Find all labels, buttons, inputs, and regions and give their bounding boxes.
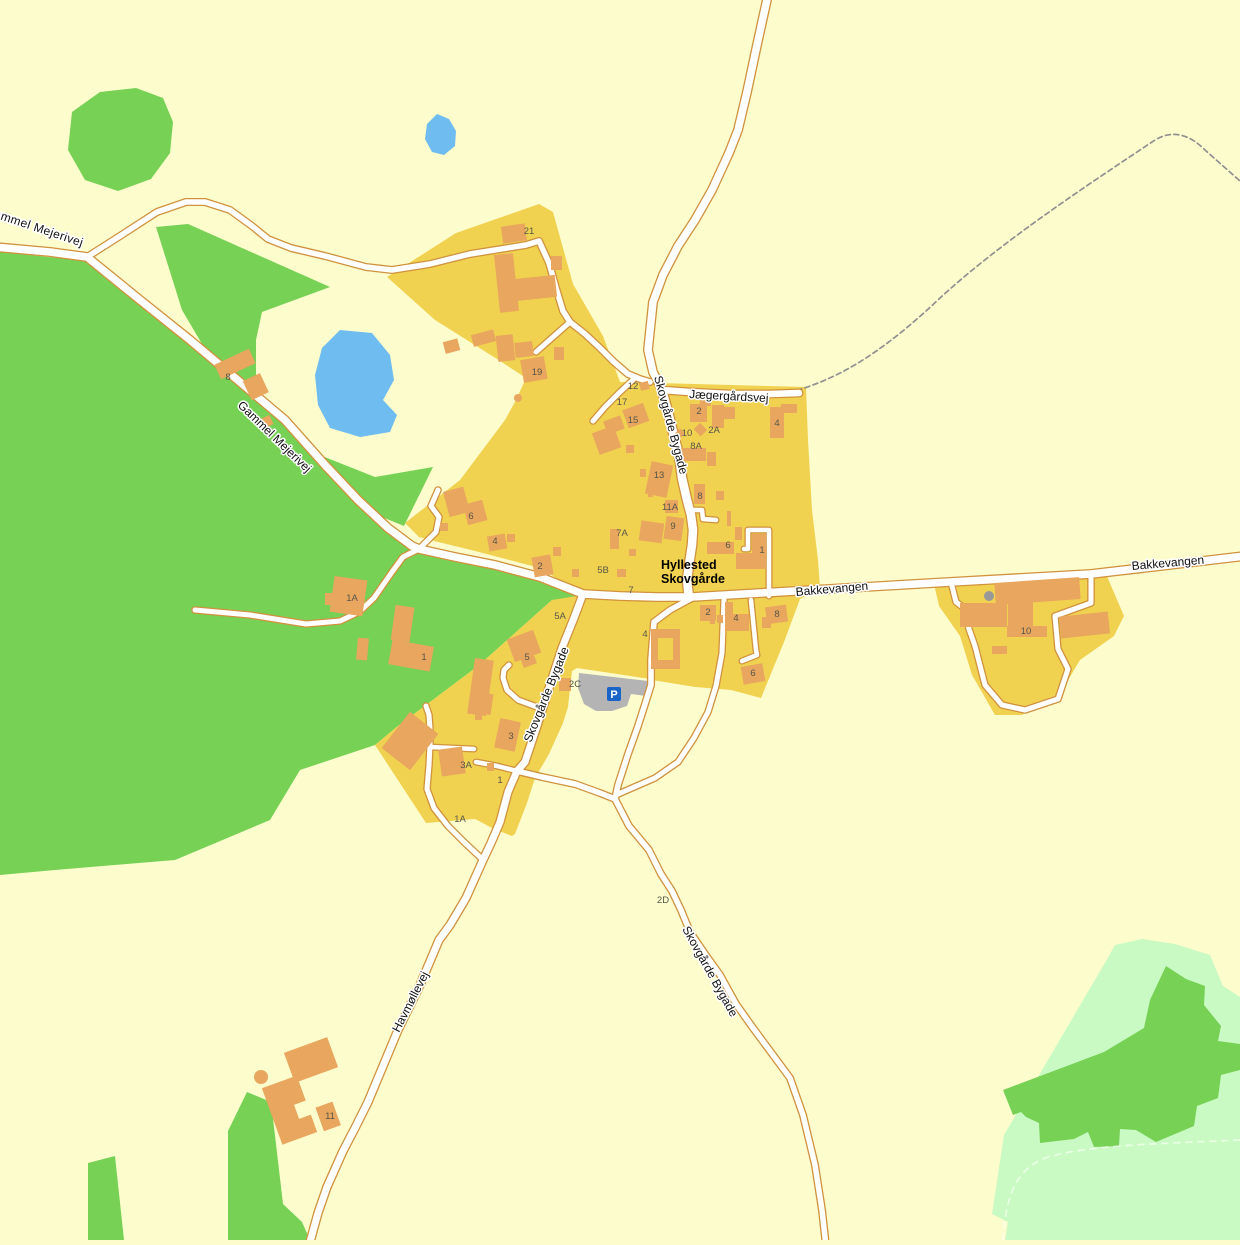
svg-text:7A: 7A — [616, 528, 628, 539]
svg-text:8A: 8A — [690, 441, 702, 452]
svg-text:Skovgårde: Skovgårde — [661, 572, 725, 586]
svg-text:P: P — [610, 689, 617, 701]
svg-text:8: 8 — [774, 609, 779, 620]
svg-text:4: 4 — [733, 613, 738, 624]
svg-text:3: 3 — [508, 731, 513, 742]
svg-text:2C: 2C — [569, 679, 581, 690]
svg-text:19: 19 — [532, 367, 543, 378]
svg-text:4: 4 — [642, 629, 647, 640]
svg-text:1A: 1A — [454, 814, 466, 825]
svg-text:2: 2 — [705, 607, 710, 618]
svg-text:Hyllested: Hyllested — [661, 558, 717, 572]
svg-text:6: 6 — [750, 668, 755, 679]
svg-text:2A: 2A — [708, 425, 720, 436]
svg-text:11: 11 — [325, 1111, 335, 1122]
svg-text:2: 2 — [537, 561, 542, 572]
svg-text:1: 1 — [497, 775, 502, 786]
svg-text:1A: 1A — [346, 593, 358, 604]
svg-text:6: 6 — [468, 511, 473, 522]
svg-text:5A: 5A — [554, 611, 566, 622]
svg-text:13: 13 — [654, 470, 665, 481]
svg-text:2: 2 — [696, 406, 701, 417]
svg-text:6: 6 — [725, 540, 730, 551]
svg-text:12: 12 — [628, 381, 639, 392]
svg-text:15: 15 — [628, 415, 639, 426]
svg-text:17: 17 — [617, 397, 628, 408]
svg-text:10: 10 — [682, 428, 693, 439]
svg-text:8: 8 — [697, 491, 702, 502]
svg-text:3A: 3A — [460, 760, 472, 771]
svg-text:5B: 5B — [597, 565, 609, 576]
svg-text:4: 4 — [774, 418, 779, 429]
svg-text:5: 5 — [524, 652, 529, 663]
svg-text:1: 1 — [759, 545, 764, 556]
svg-text:8: 8 — [225, 372, 230, 383]
svg-text:10: 10 — [1021, 626, 1032, 637]
svg-text:4: 4 — [492, 536, 497, 547]
svg-text:21: 21 — [524, 226, 535, 237]
svg-text:9: 9 — [670, 521, 675, 532]
svg-text:7: 7 — [628, 585, 633, 596]
svg-text:1: 1 — [421, 652, 426, 663]
svg-text:2D: 2D — [657, 895, 669, 906]
svg-text:11A: 11A — [662, 502, 679, 513]
